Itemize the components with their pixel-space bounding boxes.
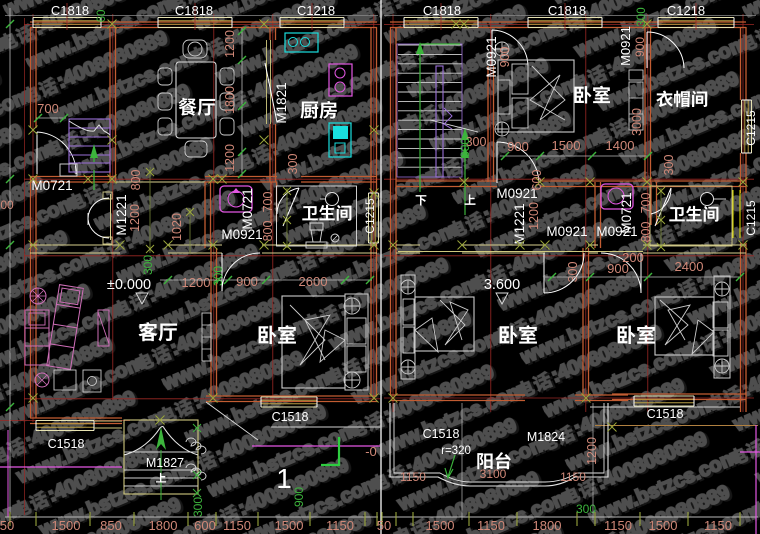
- svg-text:M1221: M1221: [512, 203, 527, 244]
- svg-text:1500: 1500: [52, 518, 81, 533]
- svg-text:C1818: C1818: [423, 3, 461, 18]
- svg-text:3100: 3100: [480, 467, 507, 481]
- svg-text:M0721: M0721: [31, 178, 72, 193]
- svg-text:M0721: M0721: [619, 192, 634, 233]
- svg-text:1200: 1200: [128, 204, 142, 232]
- svg-text:C1818: C1818: [51, 3, 89, 18]
- svg-text:1200: 1200: [182, 275, 211, 290]
- svg-text:300: 300: [191, 497, 205, 517]
- svg-text:300: 300: [566, 262, 580, 283]
- svg-text:300: 300: [211, 266, 225, 286]
- svg-text:C1215: C1215: [744, 200, 758, 236]
- svg-text:900: 900: [236, 274, 258, 289]
- svg-text:700: 700: [261, 192, 275, 213]
- svg-text:M1824: M1824: [527, 430, 565, 444]
- svg-text:1150: 1150: [400, 470, 426, 484]
- svg-text:1150: 1150: [223, 518, 251, 533]
- svg-text:1200: 1200: [223, 144, 237, 172]
- svg-text:900: 900: [292, 487, 306, 507]
- svg-text:900: 900: [633, 37, 647, 57]
- svg-text:3.600: 3.600: [484, 277, 520, 293]
- svg-text:C1215: C1215: [744, 110, 758, 146]
- svg-text:1: 1: [276, 463, 292, 494]
- svg-text:M0921: M0921: [546, 224, 587, 239]
- svg-text:C1518: C1518: [647, 407, 684, 421]
- svg-text:C1818: C1818: [548, 3, 586, 18]
- svg-text:1150: 1150: [604, 518, 632, 533]
- svg-text:1200: 1200: [585, 437, 599, 465]
- svg-text:300: 300: [141, 255, 155, 275]
- svg-text:1150: 1150: [477, 518, 505, 533]
- svg-text:900: 900: [498, 47, 512, 68]
- svg-text:1020: 1020: [170, 213, 184, 241]
- svg-text:M1827: M1827: [146, 456, 184, 470]
- svg-text:200: 200: [622, 250, 644, 265]
- svg-text:C1518: C1518: [423, 427, 460, 441]
- svg-text:600: 600: [194, 518, 216, 533]
- svg-text:C1218: C1218: [297, 3, 335, 18]
- svg-text:M1221: M1221: [114, 194, 129, 235]
- svg-text:C1818: C1818: [175, 3, 213, 18]
- svg-text:C1218: C1218: [667, 3, 705, 18]
- svg-text:1400: 1400: [606, 138, 635, 153]
- svg-text:1500: 1500: [552, 138, 581, 153]
- svg-text:±0.000: ±0.000: [107, 277, 151, 293]
- svg-text:2600: 2600: [299, 274, 328, 289]
- svg-text:50: 50: [377, 518, 391, 533]
- svg-text:1200: 1200: [223, 30, 237, 58]
- svg-text:700: 700: [639, 193, 653, 214]
- svg-text:800: 800: [129, 170, 143, 191]
- svg-text:1500: 1500: [426, 518, 455, 533]
- svg-text:1800: 1800: [149, 518, 178, 533]
- svg-text:1150: 1150: [560, 470, 586, 484]
- svg-text:r=320: r=320: [441, 445, 471, 457]
- svg-text:60: 60: [96, 10, 108, 23]
- svg-text:900: 900: [507, 139, 529, 154]
- svg-text:M0921: M0921: [618, 26, 633, 66]
- svg-text:M0921: M0921: [484, 36, 499, 77]
- svg-text:300: 300: [286, 154, 300, 175]
- svg-text:1150: 1150: [704, 518, 732, 533]
- svg-text:2400: 2400: [675, 259, 704, 274]
- svg-text:1800: 1800: [223, 86, 237, 114]
- svg-text:300: 300: [458, 138, 472, 158]
- svg-text:00: 00: [0, 198, 14, 212]
- svg-text:1800: 1800: [533, 518, 562, 533]
- svg-text:1200: 1200: [527, 202, 541, 230]
- svg-text:300: 300: [662, 155, 676, 176]
- svg-text:850: 850: [100, 518, 122, 533]
- svg-text:C1215: C1215: [363, 198, 377, 234]
- svg-text:M0721: M0721: [240, 188, 255, 229]
- svg-text:-0: -0: [365, 444, 377, 459]
- svg-text:C1518: C1518: [48, 437, 85, 451]
- svg-text:1150: 1150: [326, 518, 354, 533]
- svg-text:800: 800: [261, 221, 275, 242]
- svg-text:M1821: M1821: [274, 82, 289, 123]
- svg-text:C1518: C1518: [272, 410, 309, 424]
- svg-text:800: 800: [639, 222, 653, 243]
- svg-text:50: 50: [0, 518, 14, 533]
- svg-text:1500: 1500: [649, 518, 678, 533]
- svg-text:700: 700: [37, 101, 59, 116]
- svg-text:1500: 1500: [275, 518, 304, 533]
- svg-text:3000: 3000: [630, 108, 644, 136]
